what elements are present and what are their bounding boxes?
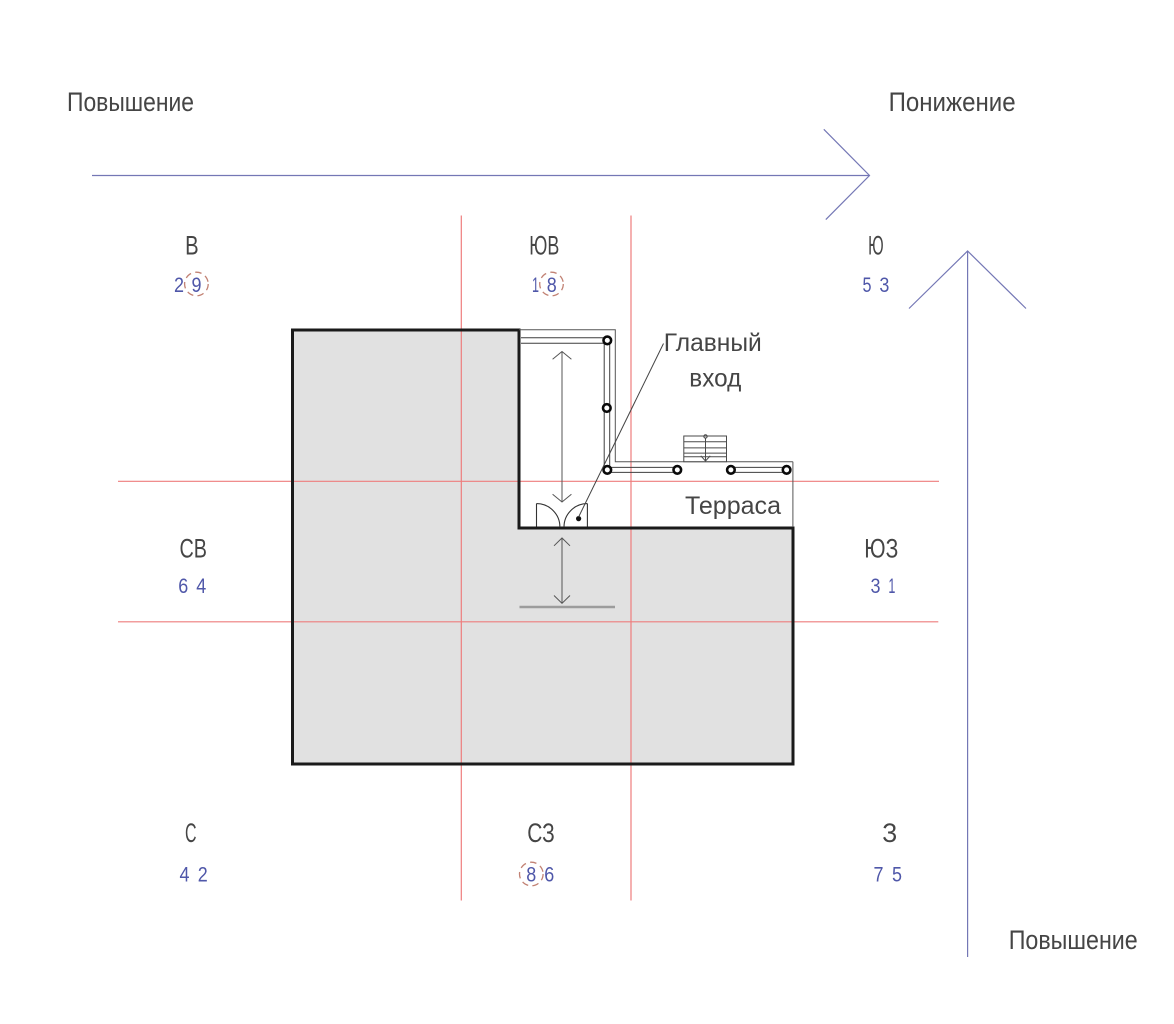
svg-text:2: 2 xyxy=(198,863,208,887)
svg-text:8: 8 xyxy=(547,273,557,297)
svg-text:4: 4 xyxy=(196,574,206,598)
svg-text:З: З xyxy=(882,818,897,848)
svg-text:Главный: Главный xyxy=(664,329,762,357)
svg-text:5: 5 xyxy=(892,863,902,887)
svg-text:1: 1 xyxy=(888,574,895,598)
svg-text:СВ: СВ xyxy=(179,534,207,564)
svg-text:Повышение: Повышение xyxy=(67,87,194,117)
svg-text:ЮЗ: ЮЗ xyxy=(864,534,898,564)
svg-text:4: 4 xyxy=(180,863,190,887)
svg-text:Повышение: Повышение xyxy=(1009,925,1138,955)
svg-text:6: 6 xyxy=(178,574,188,598)
svg-text:вход: вход xyxy=(689,365,741,393)
svg-text:Понижение: Понижение xyxy=(889,87,1016,117)
svg-text:8: 8 xyxy=(526,863,536,887)
svg-text:СЗ: СЗ xyxy=(527,818,555,848)
svg-text:7: 7 xyxy=(874,863,884,887)
svg-text:5: 5 xyxy=(863,273,872,297)
svg-text:В: В xyxy=(185,231,199,261)
svg-text:3: 3 xyxy=(871,574,881,598)
svg-text:2: 2 xyxy=(174,273,184,297)
svg-text:Ю: Ю xyxy=(868,231,884,261)
svg-text:ЮВ: ЮВ xyxy=(529,231,559,261)
svg-text:1: 1 xyxy=(532,273,539,297)
svg-text:9: 9 xyxy=(192,273,202,297)
svg-text:С: С xyxy=(185,818,197,848)
svg-text:Терраса: Терраса xyxy=(685,492,781,520)
svg-text:6: 6 xyxy=(544,863,554,887)
svg-text:3: 3 xyxy=(879,273,889,297)
